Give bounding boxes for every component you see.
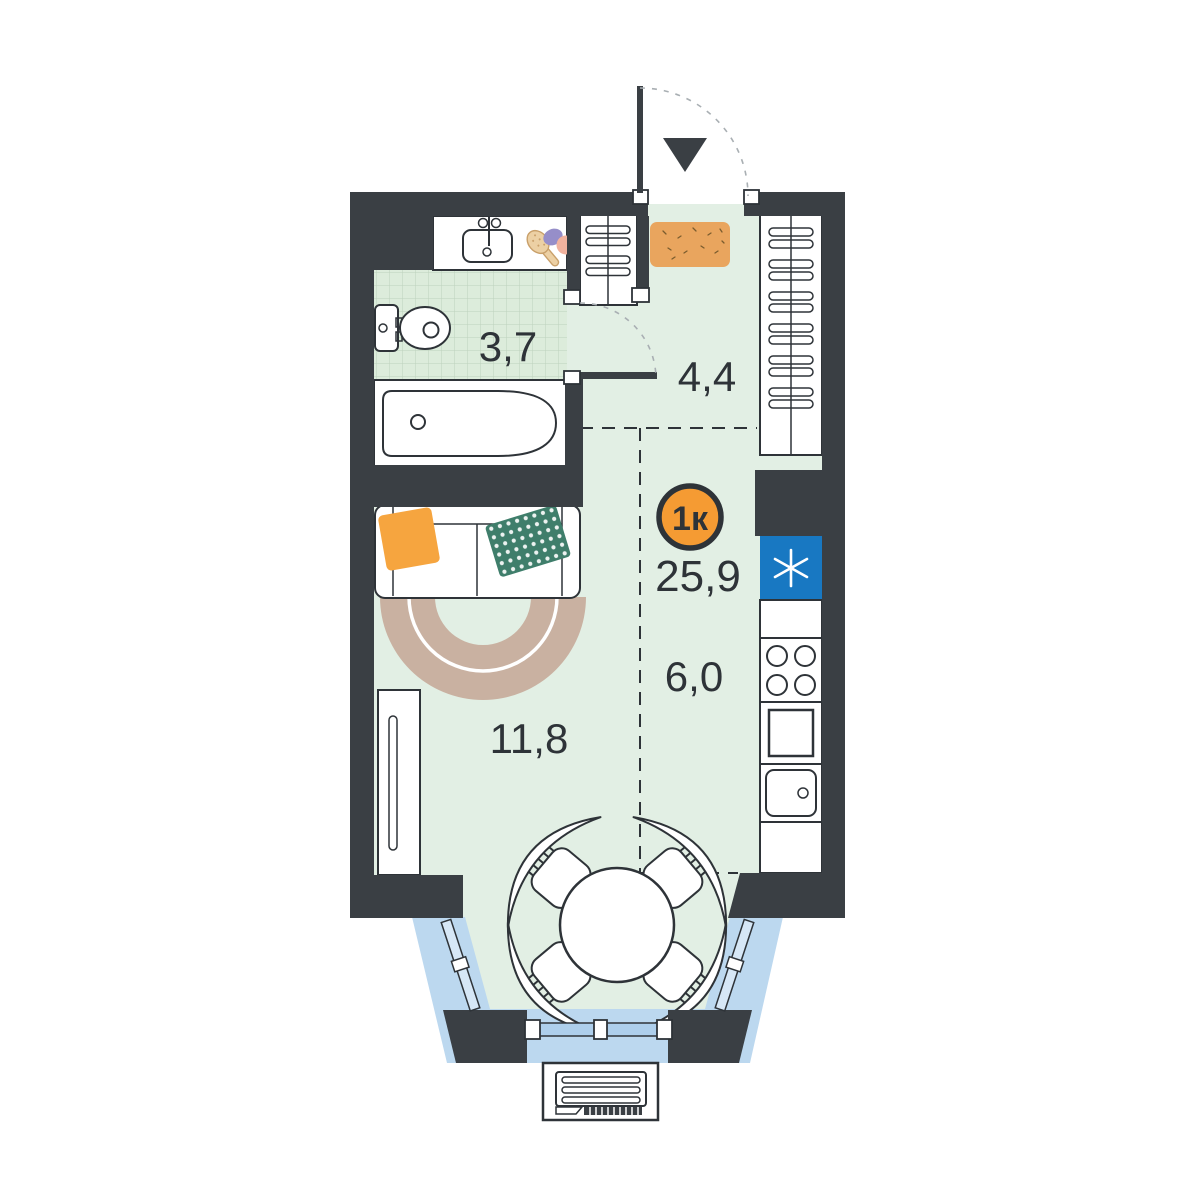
bathtub-icon bbox=[374, 380, 567, 467]
total-area-label: 25,9 bbox=[655, 552, 741, 601]
toilet-icon bbox=[375, 305, 450, 351]
ac-unit bbox=[543, 1063, 658, 1120]
oven bbox=[760, 702, 822, 764]
stove bbox=[760, 638, 822, 702]
kitchen-counter bbox=[760, 600, 822, 638]
wardrobe bbox=[760, 213, 822, 455]
hall-closet bbox=[580, 214, 637, 305]
floor-plan-page: 3,7 4,4 11,8 6,0 25,9 1к bbox=[0, 0, 1200, 1200]
bay-wall-left bbox=[443, 1010, 527, 1063]
hallway-area-label: 4,4 bbox=[678, 353, 736, 400]
tall-cabinet bbox=[378, 690, 420, 875]
door-jamb bbox=[744, 190, 759, 204]
pillow-orange bbox=[378, 507, 441, 572]
kitchen-sink bbox=[760, 764, 822, 822]
sofa bbox=[375, 504, 580, 598]
apartment-type-label: 1к bbox=[672, 500, 709, 538]
round-table bbox=[560, 868, 674, 982]
bay-wall-right bbox=[668, 1010, 752, 1063]
kitchen bbox=[760, 536, 822, 873]
kitchen-area-label: 6,0 bbox=[665, 653, 723, 700]
floor-plan: 3,7 4,4 11,8 6,0 25,9 1к bbox=[0, 0, 1200, 1200]
living-room-area-label: 11,8 bbox=[490, 715, 569, 762]
bathroom-area-label: 3,7 bbox=[479, 323, 537, 370]
window-bottom bbox=[525, 1020, 672, 1039]
kitchen-counter bbox=[760, 822, 822, 873]
apartment-type-badge: 1к bbox=[659, 486, 721, 548]
doormat bbox=[650, 222, 730, 267]
